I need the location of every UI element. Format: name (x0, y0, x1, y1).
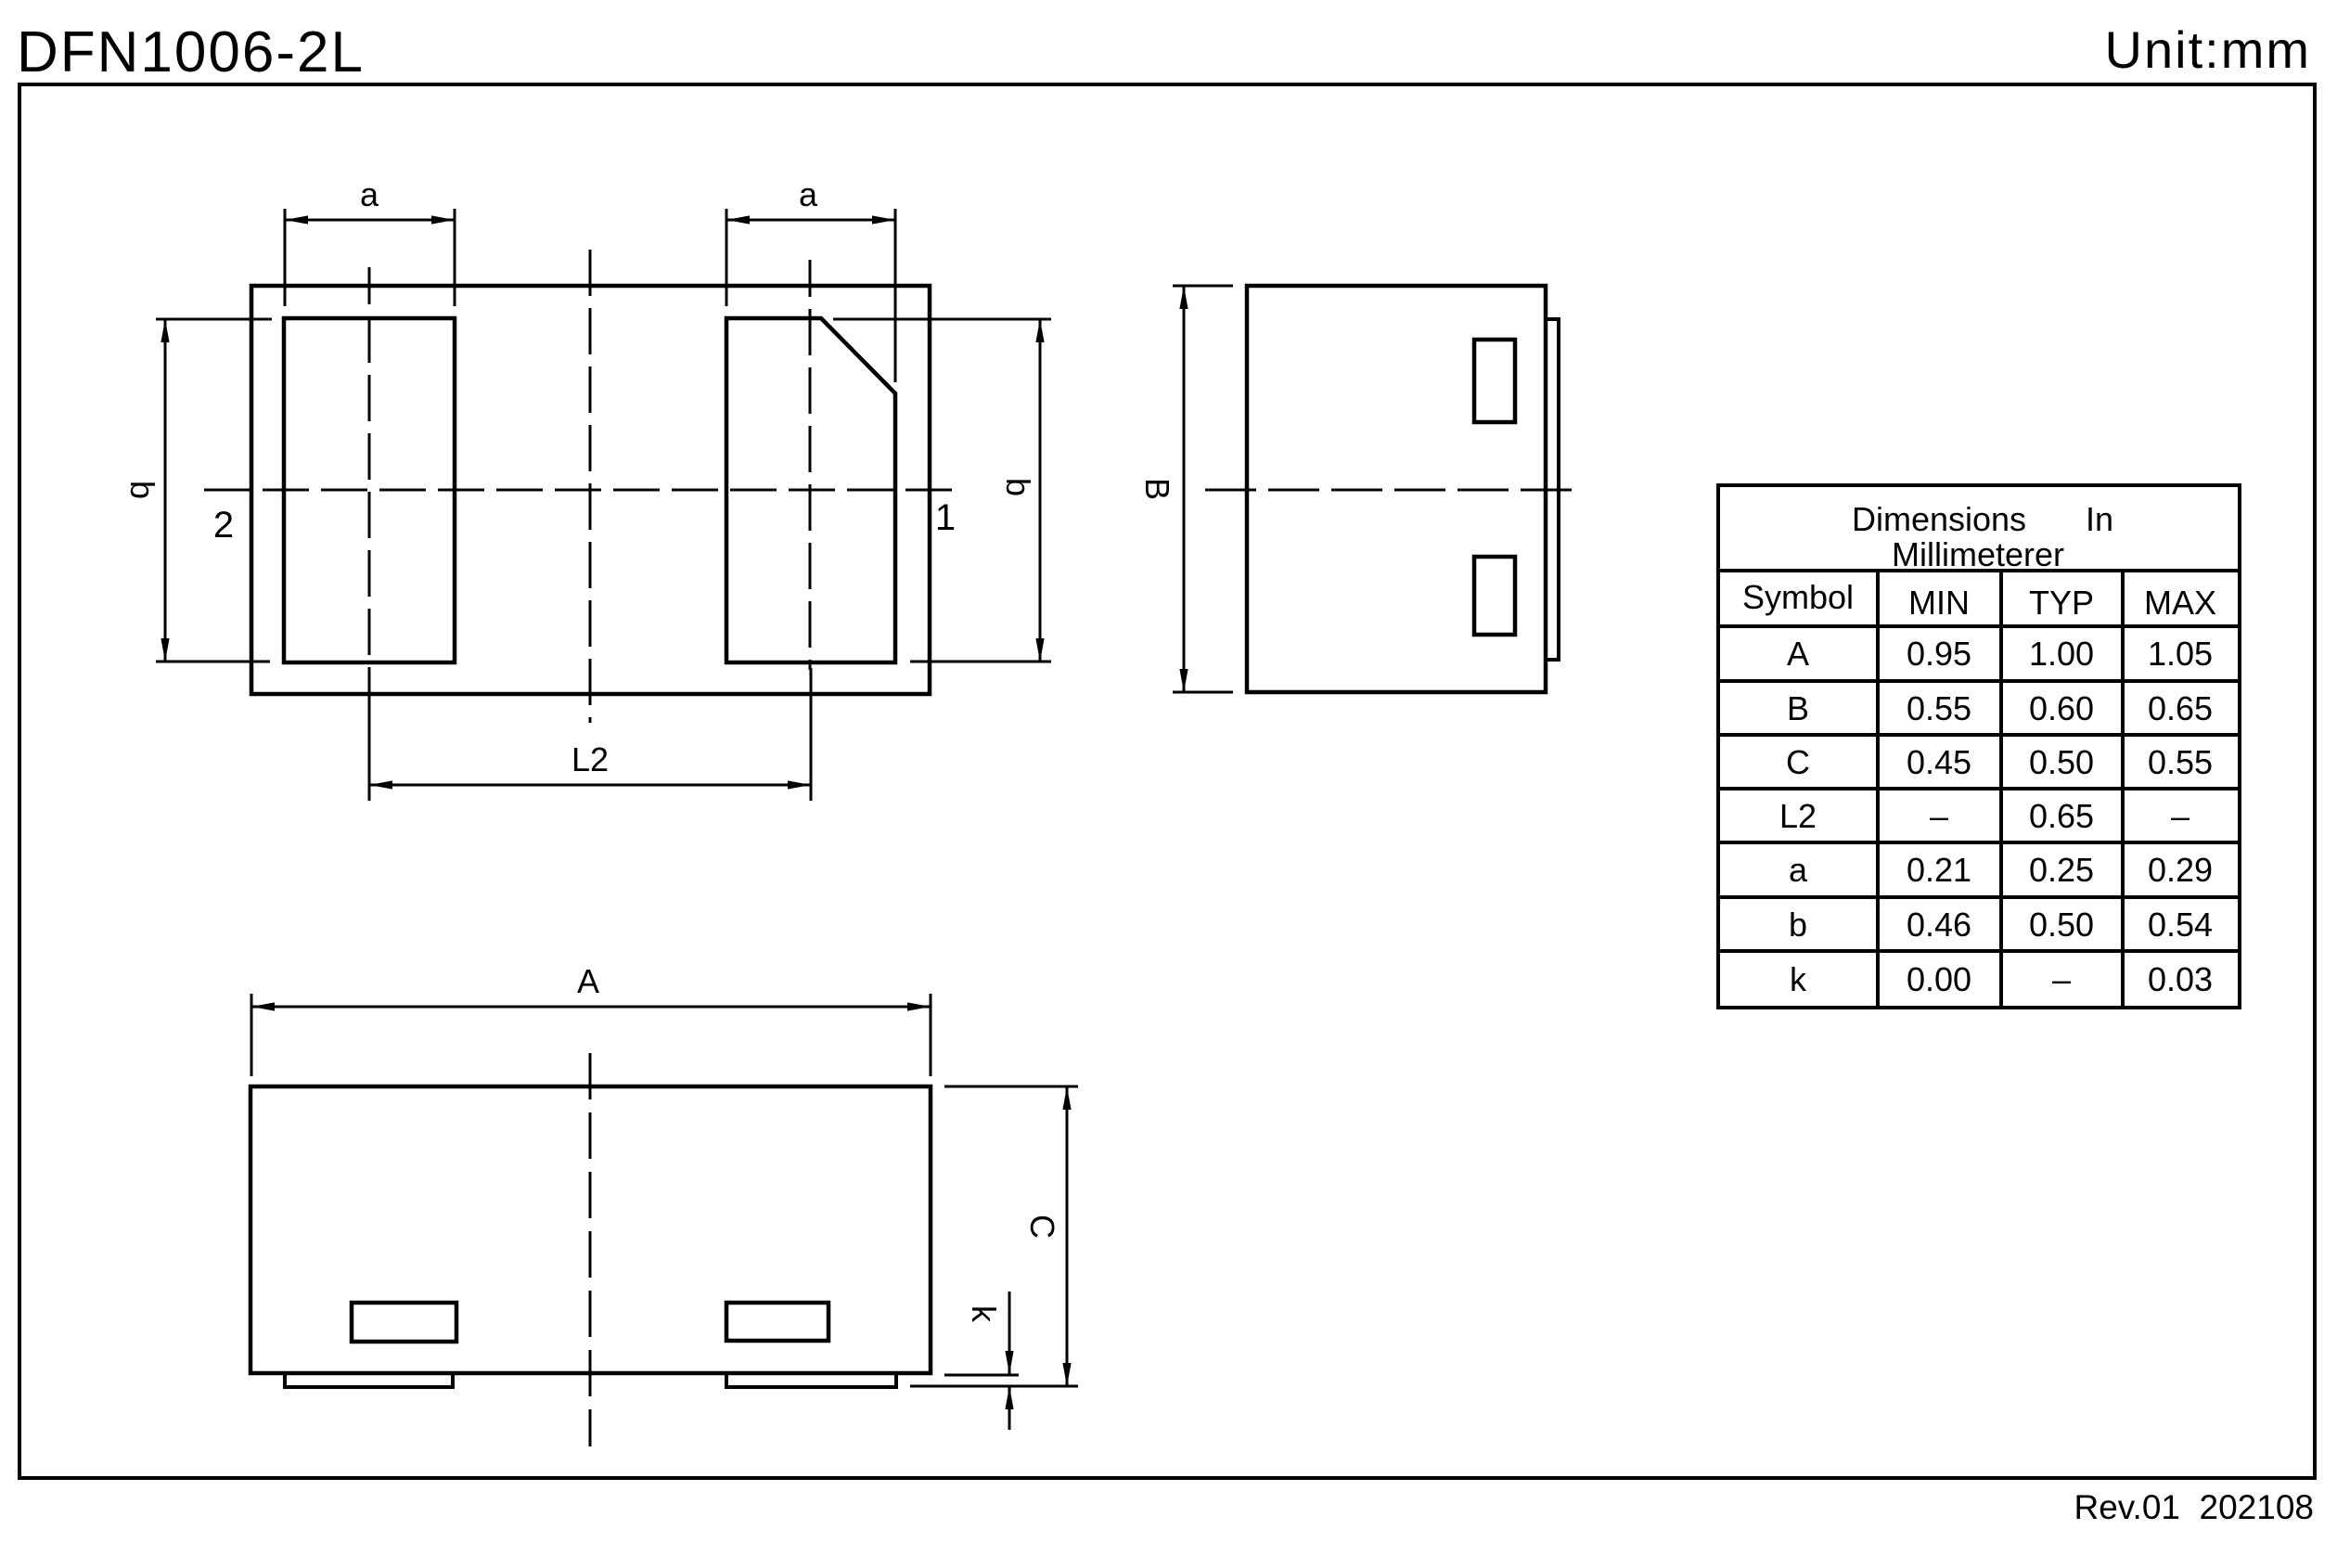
svg-text:0.54: 0.54 (2148, 906, 2213, 944)
svg-text:0.50: 0.50 (2029, 906, 2094, 944)
svg-text:a: a (1789, 851, 1808, 889)
svg-text:A: A (1787, 635, 1809, 673)
svg-text:0.03: 0.03 (2148, 960, 2213, 998)
svg-text:Millimeterer: Millimeterer (1892, 535, 2064, 573)
svg-text:a: a (360, 175, 379, 213)
svg-text:0.95: 0.95 (1907, 635, 1971, 673)
svg-text:0.65: 0.65 (2029, 797, 2094, 835)
svg-text:b: b (1789, 906, 1807, 944)
svg-text:a: a (799, 175, 818, 213)
svg-text:0.29: 0.29 (2148, 851, 2213, 889)
svg-text:k: k (1790, 960, 1807, 998)
svg-text:2: 2 (213, 505, 234, 546)
svg-text:MAX: MAX (2144, 584, 2216, 622)
svg-text:C: C (1023, 1215, 1061, 1239)
svg-text:Rev.01 202108: Rev.01 202108 (2074, 1488, 2314, 1526)
svg-text:–: – (2171, 797, 2189, 835)
svg-text:0.65: 0.65 (2148, 689, 2213, 727)
svg-text:In: In (2086, 500, 2113, 538)
svg-text:b: b (123, 481, 161, 499)
svg-text:Unit:mm: Unit:mm (2105, 20, 2311, 79)
svg-text:A: A (577, 962, 599, 1000)
svg-text:0.50: 0.50 (2029, 743, 2094, 781)
svg-text:k: k (965, 1305, 1003, 1323)
svg-text:L2: L2 (571, 740, 609, 778)
svg-text:–: – (1930, 797, 1948, 835)
svg-text:0.00: 0.00 (1907, 960, 1971, 998)
svg-text:Symbol: Symbol (1742, 578, 1854, 616)
svg-text:0.55: 0.55 (1907, 689, 1971, 727)
svg-text:0.21: 0.21 (1907, 851, 1971, 889)
svg-text:0.45: 0.45 (1907, 743, 1971, 781)
svg-text:TYP: TYP (2029, 584, 2094, 622)
svg-text:1.05: 1.05 (2148, 635, 2213, 673)
svg-text:0.46: 0.46 (1907, 906, 1971, 944)
svg-text:DFN1006-2L: DFN1006-2L (17, 20, 365, 84)
svg-text:B: B (1138, 478, 1176, 500)
svg-text:MIN: MIN (1908, 584, 1970, 622)
svg-text:0.55: 0.55 (2148, 743, 2213, 781)
svg-text:1: 1 (935, 497, 956, 538)
svg-text:L2: L2 (1779, 797, 1817, 835)
svg-text:0.60: 0.60 (2029, 689, 2094, 727)
svg-text:C: C (1786, 743, 1810, 781)
svg-text:0.25: 0.25 (2029, 851, 2094, 889)
svg-text:B: B (1787, 689, 1809, 727)
svg-text:–: – (2052, 960, 2071, 998)
svg-text:1.00: 1.00 (2029, 635, 2094, 673)
svg-text:Dimensions: Dimensions (1852, 500, 2026, 538)
svg-text:b: b (999, 478, 1037, 496)
